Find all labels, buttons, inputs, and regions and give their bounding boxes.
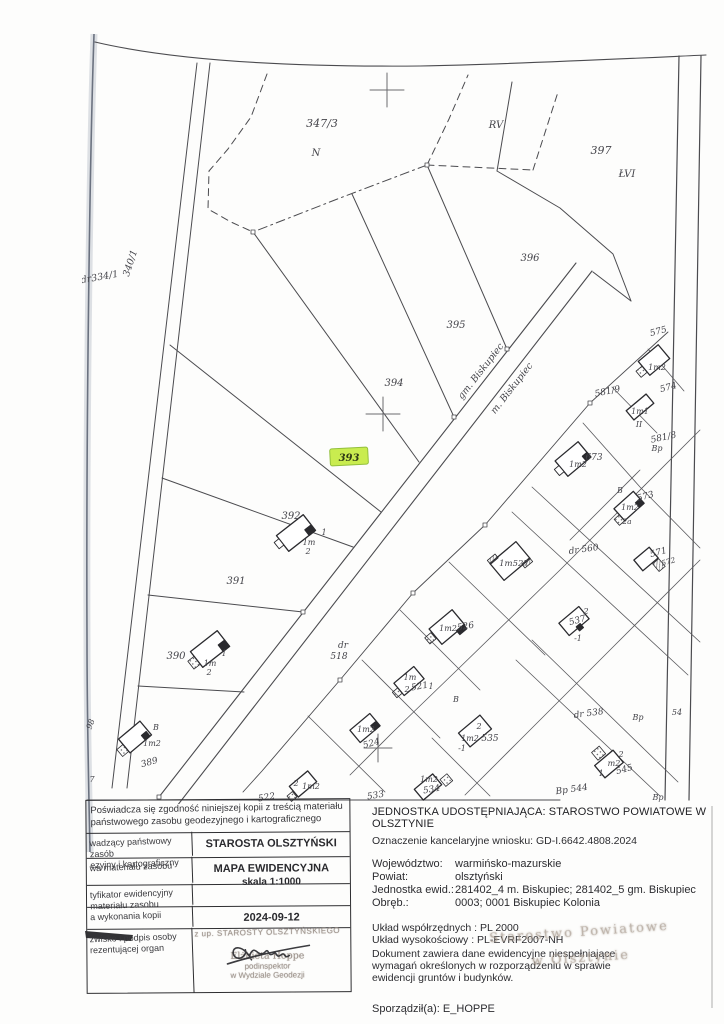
parcel-label: 1m2 xyxy=(143,739,161,748)
table-row: wadzący państwowy zasób ezyjny i kartogr… xyxy=(87,831,350,858)
parcel-label: 1m2 xyxy=(357,725,375,734)
parcel-label: 535 xyxy=(481,734,498,744)
parcel-label: 392 xyxy=(281,511,300,522)
parcel-label: 390 xyxy=(166,651,186,662)
parcel-label: dr xyxy=(338,641,349,651)
parcel-label: B xyxy=(152,723,159,732)
parcel-label: 2 xyxy=(292,779,298,788)
parcel-label: 1m2 xyxy=(621,503,639,512)
parcel-label: 2 xyxy=(205,668,211,677)
parcel-label: m. Biskupiec xyxy=(489,360,536,416)
row-label: a wykonania kopii xyxy=(87,906,194,931)
parcel-label: 1m2 xyxy=(439,624,457,633)
parcel-label: 526 xyxy=(456,621,475,634)
prepared-by: Sporządził(a): E_HOPPE xyxy=(372,1003,717,1015)
parcel-label: 347/3 xyxy=(306,117,338,130)
table-row: zwisko i podpis osoby rezentującej organ xyxy=(87,927,350,995)
parcel-label: 396 xyxy=(520,253,540,264)
main-road xyxy=(159,263,631,806)
parcel-label: 98 xyxy=(85,718,97,731)
parcel-label: 521 xyxy=(410,681,429,694)
info-field: Województwo:warmińsko-mazurskie xyxy=(372,858,717,871)
parcel-label: ŁVI xyxy=(618,169,637,180)
parcel-label: 1m2 xyxy=(569,460,587,469)
parcel-label: 340/1 xyxy=(121,249,140,278)
parcel-label: 2 xyxy=(403,685,409,694)
row-label: zwisko i podpis osoby rezentującej organ xyxy=(86,928,194,997)
row-value xyxy=(193,884,350,906)
providing-unit: JEDNOSTKA UDOSTĘPNIAJĄCA: STAROSTWO POWI… xyxy=(372,806,717,830)
parcel-label: 2 xyxy=(475,722,481,731)
table-row: wa materiału zasobuMAPA EWIDENCYJNAskala… xyxy=(87,856,350,885)
parcel-label: 581/9 xyxy=(594,384,622,399)
info-field: Powiat:olsztyński xyxy=(372,871,717,884)
parcel-label: 673 xyxy=(585,453,602,463)
parcel-label: RV xyxy=(488,120,505,131)
parcel-label: Bp xyxy=(651,444,663,453)
row-label: wa materiału zasobu xyxy=(86,857,193,887)
parcel-label: 534 xyxy=(422,784,441,797)
parcel-label: 395 xyxy=(446,320,465,331)
parcel-label: 572 xyxy=(660,555,676,567)
certification-statement: Poświadcza się zgodność niniejszej kopii… xyxy=(86,798,350,835)
case-reference: Oznaczenie kancelaryjne wniosku: GD-I.66… xyxy=(372,835,717,847)
parcel-label: 54 xyxy=(672,708,682,717)
parcel-label: 1 xyxy=(428,682,433,691)
parcel-label: B xyxy=(616,486,623,495)
row-value: STAROSTA OLSZTYŃSKI xyxy=(193,832,350,857)
dashed-boundary-347-3 xyxy=(208,74,558,232)
parcel-label: gm. Biskupiec xyxy=(456,341,507,402)
parcel-label: Bp xyxy=(652,793,664,802)
parcel-label: 1m2 xyxy=(420,775,438,784)
parcel-label: 1 xyxy=(221,649,226,658)
parcel-label: 575 xyxy=(649,325,668,339)
row-label: tyfikator ewidencyjny materiału zasobu xyxy=(87,884,194,909)
parcel-label: 394 xyxy=(384,378,403,389)
certification-table: Poświadcza się zgodność niniejszej kopii… xyxy=(85,798,351,994)
location-fields: Województwo:warmińsko-mazurskiePowiat:ol… xyxy=(372,858,717,910)
parcel-label: -1 xyxy=(574,634,582,643)
document-info-block: JEDNOSTKA UDOSTĘPNIAJĄCA: STAROSTWO POWI… xyxy=(372,806,717,1015)
parcel-label: 2 xyxy=(304,547,310,556)
info-field: Obręb.:0003; 0001 Biskupiec Kolonia xyxy=(372,897,717,910)
parcel-labels: 347/3NRV397ŁVI396395394393gm. Biskupiecm… xyxy=(80,117,682,804)
parcel-label: 1m1 xyxy=(631,407,649,416)
parcel-label: dr 560 xyxy=(568,543,599,557)
parcel-label: 391 xyxy=(226,576,245,587)
row-value xyxy=(193,928,350,994)
parcel-label: 1m xyxy=(404,673,417,682)
table-row: a wykonania kopii2024-09-12 xyxy=(87,905,350,929)
parcel-label: 518 xyxy=(330,652,347,662)
parcel-label: N xyxy=(311,148,322,159)
grid-cross-marks xyxy=(364,73,404,762)
row-value: 2024-09-12 xyxy=(193,906,350,928)
parcel-label: 1m2 xyxy=(302,782,320,791)
parcel-label: 1m2 xyxy=(648,363,666,372)
parcel-label: dr 538 xyxy=(573,707,604,721)
parcel-label: -1 xyxy=(458,744,466,753)
parcel-label: 574 xyxy=(659,381,678,395)
parcel-label: 397 xyxy=(591,144,612,157)
parcel-label: 1m xyxy=(303,538,316,547)
parcel-label: II xyxy=(635,420,643,429)
parcel-label: B xyxy=(452,695,459,704)
row-value: MAPA EWIDENCYJNAskala 1:1000 xyxy=(193,857,350,884)
parcel-label: 1 xyxy=(598,769,603,778)
parcel-label: 7 xyxy=(89,775,95,784)
parcel-label: 1 xyxy=(321,528,326,537)
table-row: tyfikator ewidencyjny materiału zasobu xyxy=(87,883,350,907)
parcel-label: Bp 544 xyxy=(554,783,589,798)
parcel-label: 393 xyxy=(339,453,360,464)
parcel-label: 2a xyxy=(621,517,631,526)
parcel-label: 389 xyxy=(140,756,159,770)
parcel-label: 2 xyxy=(617,750,623,759)
info-field: Jednostka ewid.:281402_4 m. Biskupiec; 2… xyxy=(372,884,717,897)
parcel-label: 573 xyxy=(636,490,655,504)
scanned-cadastral-map-page: 347/3NRV397ŁVI396395394393gm. Biskupiecm… xyxy=(0,0,724,1024)
parcel-label: 1m527 xyxy=(499,559,529,569)
row-label: wadzący państwowy zasób ezyjny i kartogr… xyxy=(86,832,193,860)
parcel-label: 1m xyxy=(204,659,217,668)
parcel-label: 1m2 xyxy=(461,734,479,743)
parcel-label: Bp xyxy=(632,713,644,722)
